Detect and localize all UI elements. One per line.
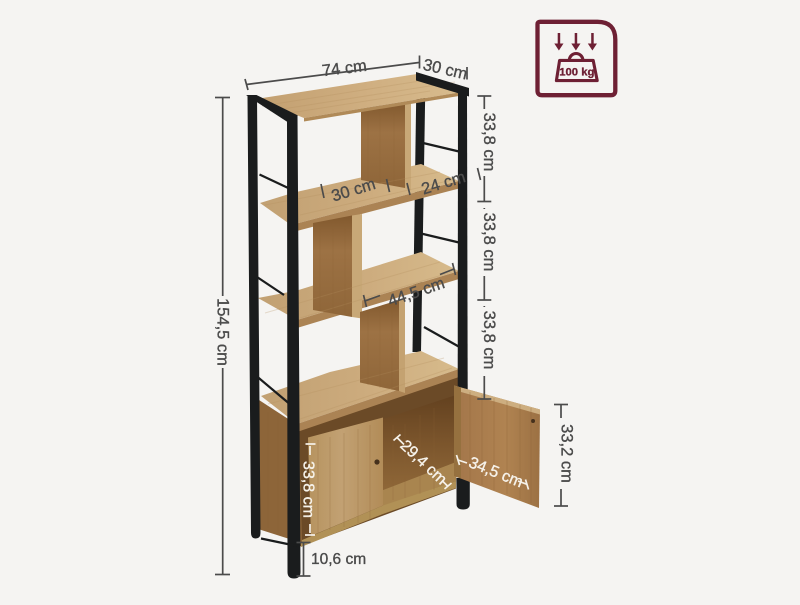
svg-text:10,6 cm: 10,6 cm	[311, 551, 366, 568]
svg-text:33,8 cm: 33,8 cm	[480, 213, 498, 272]
svg-text:33,8 cm: 33,8 cm	[480, 311, 498, 370]
svg-text:154,5 cm: 154,5 cm	[214, 298, 232, 366]
svg-text:33,8 cm: 33,8 cm	[300, 461, 317, 518]
svg-text:33,2 cm: 33,2 cm	[558, 424, 576, 483]
svg-text:100 kg: 100 kg	[559, 67, 594, 79]
svg-text:33,8 cm: 33,8 cm	[480, 113, 498, 172]
